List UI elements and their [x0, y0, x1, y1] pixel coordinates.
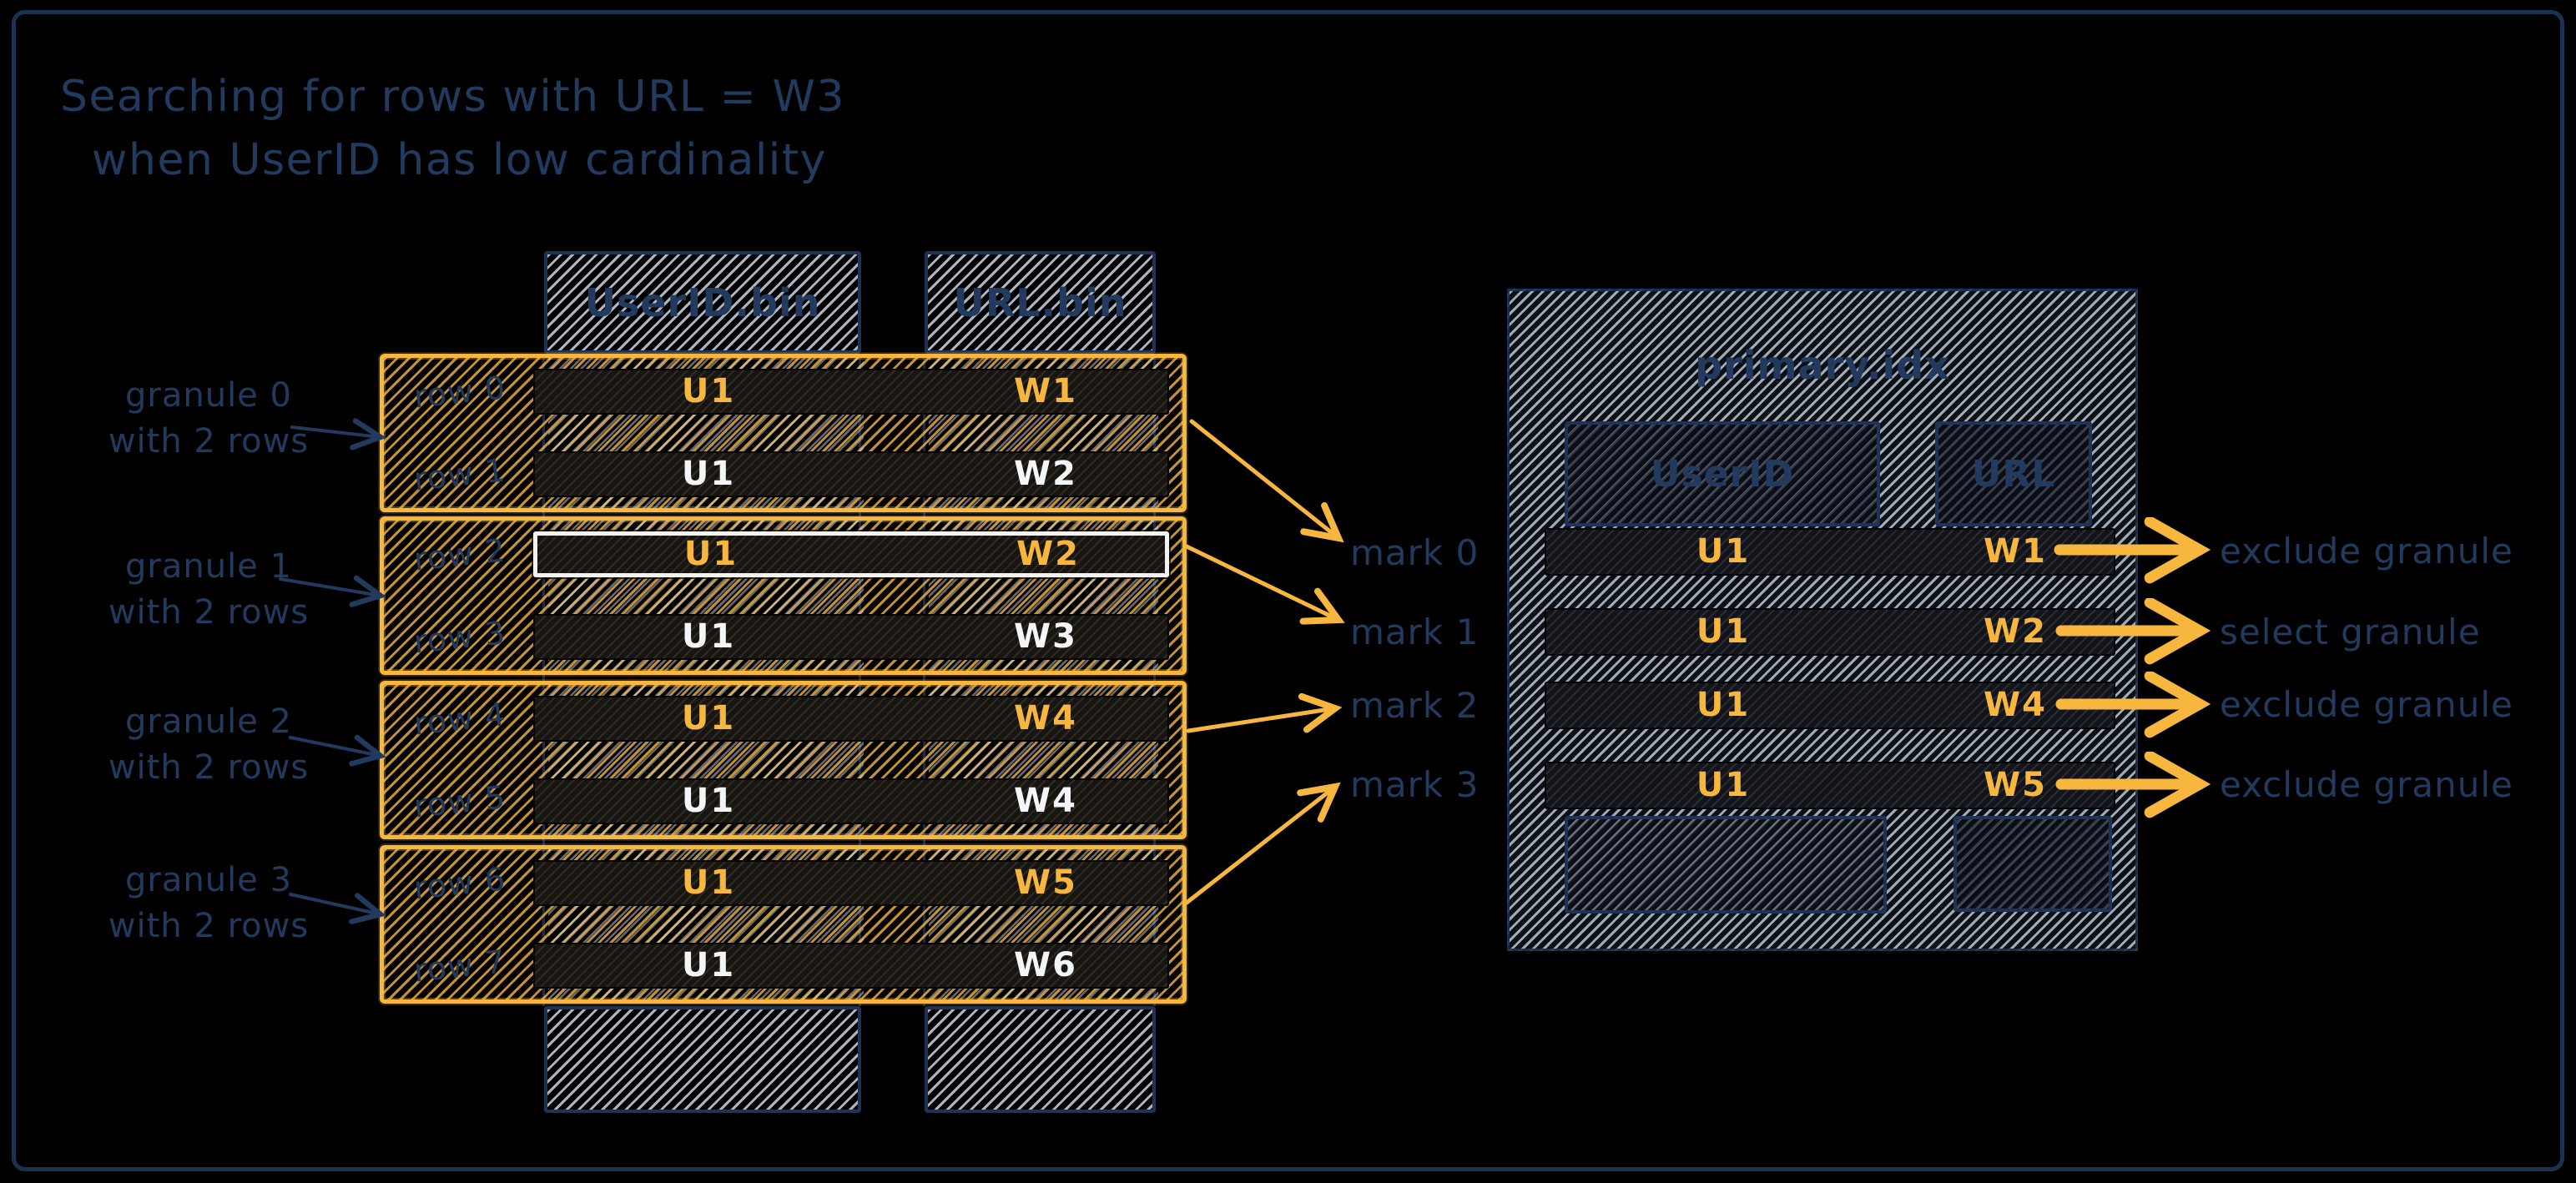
row-label: row 1: [387, 449, 532, 501]
column-header-url-bin-label: URL.bin: [953, 280, 1127, 325]
cell-userid: U1: [684, 535, 738, 573]
cell-url: W5: [1984, 766, 2047, 804]
primary-index-row-1: U1 W2: [1545, 608, 2115, 656]
row-label: row 5: [387, 776, 532, 828]
column-header-userid-bin-label: UserID.bin: [585, 280, 821, 325]
cell-url: W1: [1014, 372, 1077, 410]
granule-label-line-2: with 2 rows: [58, 590, 359, 636]
primary-index-row-2: U1 W4: [1545, 682, 2115, 729]
mark-label-1: mark 1: [1350, 612, 1509, 652]
primary-index-panel: primary.idx UserID URL U1 W1 U1 W2 U1 W4…: [1507, 289, 2138, 951]
cell-url: W2: [1016, 535, 1080, 573]
cell-userid: U1: [682, 863, 735, 902]
title-line-2: when UserID has low cardinality: [92, 128, 845, 192]
primary-index-footer-userid: [1565, 816, 1887, 914]
diagram-canvas: Searching for rows with URL = W3 when Us…: [0, 0, 2576, 1183]
primary-index-header-url: URL: [1935, 421, 2092, 526]
cell-url: W1: [1984, 532, 2047, 571]
granule-label-2: granule 2 with 2 rows: [58, 699, 359, 791]
cell-userid: U1: [682, 782, 735, 820]
cell-url: W4: [1014, 782, 1077, 820]
row-label: row 0: [387, 366, 532, 418]
row-label: row 2: [387, 529, 532, 581]
granule-box-3: row 6 U1 W5 row 7 U1 W6: [380, 845, 1187, 1004]
row-label: row 7: [387, 940, 532, 992]
granule-box-0: row 0 U1 W1 row 1 U1 W2: [380, 354, 1187, 512]
table-row: U1 W6: [533, 943, 1169, 989]
cell-url: W2: [1014, 455, 1077, 493]
cell-url: W5: [1014, 863, 1077, 902]
cell-userid: U1: [1696, 612, 1750, 651]
title-line-1: Searching for rows with URL = W3: [60, 65, 845, 128]
primary-index-title: primary.idx: [1510, 343, 2135, 388]
granule-label-1: granule 1 with 2 rows: [58, 544, 359, 636]
row-label: row 3: [387, 612, 532, 663]
action-label-0: exclude granule: [2220, 531, 2513, 571]
cell-userid: U1: [682, 699, 735, 737]
cell-url: W6: [1014, 946, 1077, 984]
cell-userid: U1: [682, 455, 735, 493]
column-footer-url-bin: [925, 1006, 1156, 1113]
row-label: row 4: [387, 693, 532, 745]
mark-label-2: mark 2: [1350, 685, 1509, 726]
action-label-2: exclude granule: [2220, 684, 2513, 725]
granule-label-line-1: granule 0: [58, 373, 359, 419]
primary-index-row-0: U1 W1: [1545, 528, 2115, 576]
primary-index-row-3: U1 W5: [1545, 762, 2115, 809]
table-row: U1 W4: [533, 696, 1169, 742]
action-label-1: select granule: [2220, 612, 2481, 652]
cell-userid: U1: [1696, 686, 1750, 724]
cell-userid: U1: [1696, 766, 1750, 804]
primary-index-header-userid: UserID: [1565, 421, 1880, 526]
cell-url: W2: [1984, 612, 2047, 651]
cell-userid: U1: [682, 946, 735, 984]
column-footer-userid-bin: [544, 1006, 861, 1113]
granule-box-2: row 4 U1 W4 row 5 U1 W4: [380, 681, 1187, 839]
granule-label-line-2: with 2 rows: [58, 745, 359, 791]
granule-label-line-1: granule 3: [58, 858, 359, 904]
granule-box-1: row 2 U1 W2 row 3 U1 W3: [380, 516, 1187, 675]
table-row: U1 W3: [533, 614, 1169, 660]
cell-userid: U1: [1696, 532, 1750, 571]
granule-label-line-2: with 2 rows: [58, 419, 359, 465]
primary-index-footer-url: [1953, 816, 2112, 912]
table-row-highlighted: U1 W2: [533, 531, 1169, 577]
cell-userid: U1: [682, 372, 735, 410]
primary-index-header-url-label: URL: [1972, 453, 2056, 496]
table-row: U1 W4: [533, 778, 1169, 824]
primary-index-header-userid-label: UserID: [1651, 453, 1794, 496]
mark-label-3: mark 3: [1350, 764, 1509, 805]
cell-userid: U1: [682, 617, 735, 656]
action-label-3: exclude granule: [2220, 764, 2513, 805]
granule-label-line-1: granule 1: [58, 544, 359, 590]
granule-label-line-1: granule 2: [58, 699, 359, 745]
table-row: U1 W5: [533, 860, 1169, 906]
column-header-url-bin: URL.bin: [925, 251, 1156, 354]
granule-label-3: granule 3 with 2 rows: [58, 858, 359, 949]
table-row: U1 W2: [533, 451, 1169, 497]
cell-url: W4: [1984, 686, 2047, 724]
granule-label-0: granule 0 with 2 rows: [58, 373, 359, 465]
table-row: U1 W1: [533, 369, 1169, 415]
cell-url: W3: [1014, 617, 1077, 656]
diagram-title: Searching for rows with URL = W3 when Us…: [60, 65, 845, 192]
cell-url: W4: [1014, 699, 1077, 737]
mark-label-0: mark 0: [1350, 532, 1509, 573]
row-label: row 6: [387, 858, 532, 909]
column-header-userid-bin: UserID.bin: [544, 251, 861, 354]
granule-label-line-2: with 2 rows: [58, 904, 359, 949]
